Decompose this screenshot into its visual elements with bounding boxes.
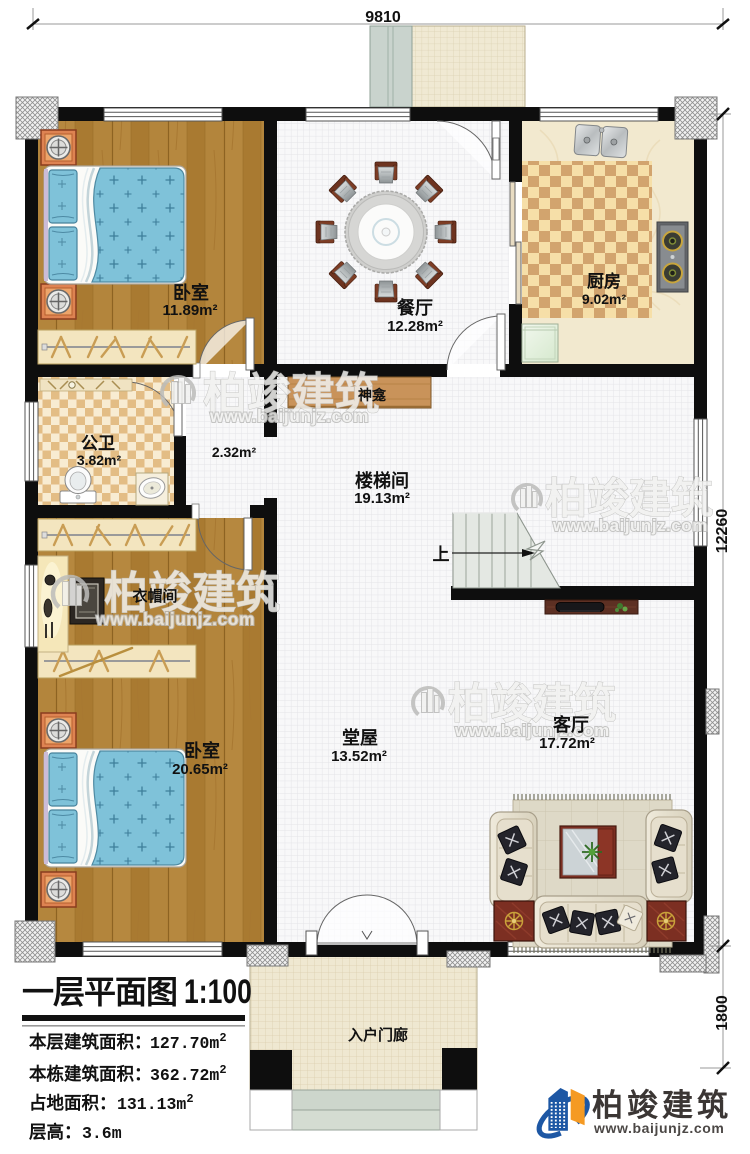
svg-text:www.baijunjz.com: www.baijunjz.com bbox=[95, 609, 255, 629]
svg-text:卧室: 卧室 bbox=[184, 740, 220, 761]
svg-text:餐厅: 餐厅 bbox=[396, 297, 433, 318]
svg-text:堂屋: 堂屋 bbox=[342, 727, 378, 748]
svg-text:17.72m²: 17.72m² bbox=[539, 735, 595, 752]
svg-text:占地面积：: 占地面积： bbox=[29, 1093, 117, 1113]
svg-text:12.28m²: 12.28m² bbox=[387, 318, 443, 335]
svg-text:柏竣建筑: 柏竣建筑 bbox=[448, 680, 616, 727]
svg-text:楼梯间: 楼梯间 bbox=[355, 470, 409, 491]
svg-text:362.72m2: 362.72m2 bbox=[150, 1063, 227, 1085]
svg-text:www.baijunjz.com: www.baijunjz.com bbox=[593, 1120, 724, 1136]
svg-text:柏竣建筑: 柏竣建筑 bbox=[592, 1088, 732, 1123]
svg-text:9810: 9810 bbox=[365, 9, 401, 26]
svg-text:9.02m²: 9.02m² bbox=[582, 291, 627, 307]
svg-text:127.70m2: 127.70m2 bbox=[150, 1031, 227, 1053]
svg-text:神龛: 神龛 bbox=[358, 387, 387, 403]
svg-text:2.32m²: 2.32m² bbox=[212, 444, 257, 460]
svg-text:131.13m2: 131.13m2 bbox=[117, 1092, 194, 1114]
svg-text:本栋建筑面积：: 本栋建筑面积： bbox=[29, 1064, 152, 1084]
svg-text:公卫: 公卫 bbox=[81, 434, 115, 453]
svg-text:1800: 1800 bbox=[714, 995, 731, 1031]
svg-text:上: 上 bbox=[433, 545, 450, 564]
svg-text:3.82m²: 3.82m² bbox=[77, 452, 122, 468]
svg-text:柏竣建筑: 柏竣建筑 bbox=[545, 475, 713, 522]
svg-text:www.baijunjz.com: www.baijunjz.com bbox=[552, 516, 708, 535]
svg-text:衣帽间: 衣帽间 bbox=[132, 587, 177, 605]
svg-text:12260: 12260 bbox=[714, 509, 731, 554]
svg-text:11.89m²: 11.89m² bbox=[162, 302, 217, 319]
svg-text:1:100: 1:100 bbox=[184, 973, 252, 1011]
svg-text:厨房: 厨房 bbox=[587, 271, 621, 291]
svg-text:www.baijunjz.com: www.baijunjz.com bbox=[209, 406, 369, 426]
svg-text:13.52m²: 13.52m² bbox=[331, 748, 387, 765]
svg-text:3.6m: 3.6m bbox=[82, 1124, 122, 1143]
svg-text:入户门廊: 入户门廊 bbox=[348, 1026, 408, 1044]
svg-text:19.13m²: 19.13m² bbox=[354, 490, 410, 507]
svg-text:层高：: 层高： bbox=[29, 1122, 82, 1142]
svg-text:一层平面图: 一层平面图 bbox=[22, 974, 177, 1010]
svg-text:客厅: 客厅 bbox=[553, 714, 589, 735]
svg-text:20.65m²: 20.65m² bbox=[172, 761, 228, 778]
svg-text:本层建筑面积：: 本层建筑面积： bbox=[29, 1032, 152, 1052]
svg-text:卧室: 卧室 bbox=[173, 282, 209, 303]
